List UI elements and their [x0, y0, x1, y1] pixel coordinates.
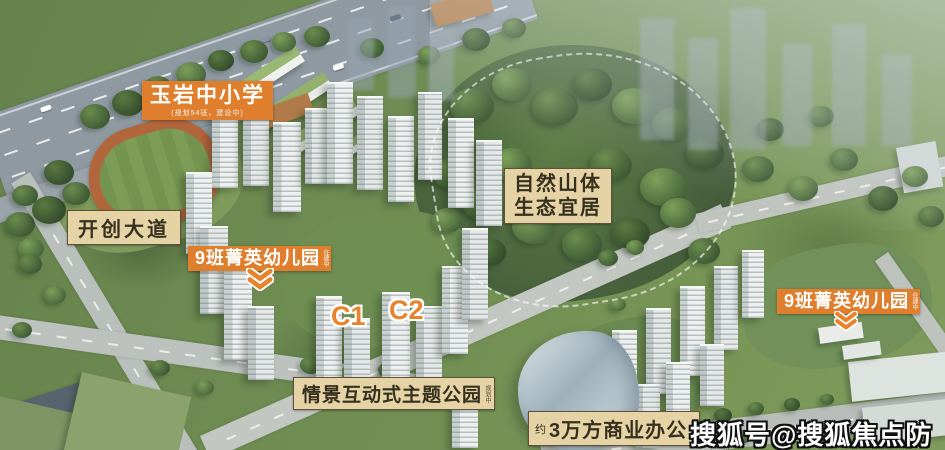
tree — [748, 402, 764, 415]
tree — [272, 32, 296, 52]
tree — [462, 28, 490, 51]
tree — [208, 50, 234, 71]
tree — [18, 254, 42, 274]
tree — [304, 26, 330, 47]
tree — [44, 160, 74, 185]
label-theme-park-text: 情景互动式主题公园 — [302, 380, 482, 407]
road-marking — [40, 104, 52, 112]
tree — [5, 212, 35, 237]
label-kindergarten-right: 9班菁英幼儿园 在建中 — [777, 289, 920, 314]
warehouse-building — [63, 372, 191, 450]
hazy-building-tower — [388, 6, 416, 98]
building-tower — [714, 266, 738, 350]
building-tower — [742, 250, 764, 318]
building-tower — [388, 116, 414, 202]
tree — [62, 182, 90, 205]
tree — [12, 322, 32, 338]
label-kindergarten-left-note: 在建中 — [322, 249, 328, 267]
tree — [80, 104, 110, 129]
tree — [820, 394, 834, 405]
tree — [784, 398, 800, 411]
building-tower — [700, 344, 724, 406]
tree — [902, 166, 928, 187]
hazy-building-tower — [348, 18, 374, 90]
down-arrow-icon — [834, 311, 858, 336]
hazy-building-tower — [428, 28, 454, 100]
tree — [918, 206, 944, 227]
label-commercial-text: 3万方商业办公 — [549, 414, 687, 443]
label-tower-c2: C2 — [389, 295, 424, 326]
tree — [830, 148, 858, 171]
label-kindergarten-right-text: 9班菁英幼儿园 — [784, 291, 909, 312]
tree — [868, 186, 898, 211]
tree — [196, 380, 214, 395]
building-tower — [305, 108, 329, 184]
label-theme-park-note: 规划中 — [484, 385, 490, 403]
tree — [742, 156, 774, 182]
hazy-building-tower — [882, 54, 912, 146]
label-kindergarten-right-note: 在建中 — [911, 292, 917, 310]
building-tower — [273, 122, 301, 212]
label-school-subtext: (规划54班，建设中) — [150, 108, 265, 118]
tree — [150, 360, 170, 376]
tree — [12, 185, 38, 206]
tree — [240, 40, 268, 63]
tree — [788, 176, 818, 201]
label-school: 玉岩中小学 (规划54班，建设中) — [142, 81, 273, 120]
tree — [502, 18, 526, 38]
hazy-building-tower — [730, 8, 766, 150]
tree — [44, 286, 66, 304]
watermark-text: 搜狐号@搜狐焦点防城港站 — [690, 415, 945, 450]
down-arrow-icon — [246, 268, 274, 296]
tree — [112, 90, 144, 116]
label-tower-c1: C1 — [331, 301, 366, 332]
label-nature: 自然山体 生态宜居 — [504, 168, 612, 224]
label-kindergarten-left: 9班菁英幼儿园 在建中 — [188, 246, 331, 271]
hazy-building-tower — [832, 24, 866, 146]
label-commercial: 约 3万方商业办公 规划中 — [528, 411, 700, 446]
aerial-rendering: 玉岩中小学 (规划54班，建设中) 开创大道 9班菁英幼儿园 在建中 自然山体 … — [0, 0, 945, 450]
building-tower — [357, 96, 383, 190]
label-school-text: 玉岩中小学 — [150, 84, 265, 108]
hazy-building-tower — [782, 44, 812, 146]
label-kindergarten-left-text: 9班菁英幼儿园 — [195, 248, 320, 269]
label-commercial-prefix: 约 — [535, 421, 546, 437]
label-nature-line1: 自然山体 — [514, 172, 602, 196]
label-theme-park: 情景互动式主题公园 规划中 — [293, 377, 495, 410]
label-nature-line2: 生态宜居 — [514, 196, 602, 220]
building-tower — [248, 306, 274, 380]
building-tower — [327, 82, 353, 184]
tree — [32, 196, 66, 224]
label-avenue: 开创大道 — [67, 210, 181, 245]
